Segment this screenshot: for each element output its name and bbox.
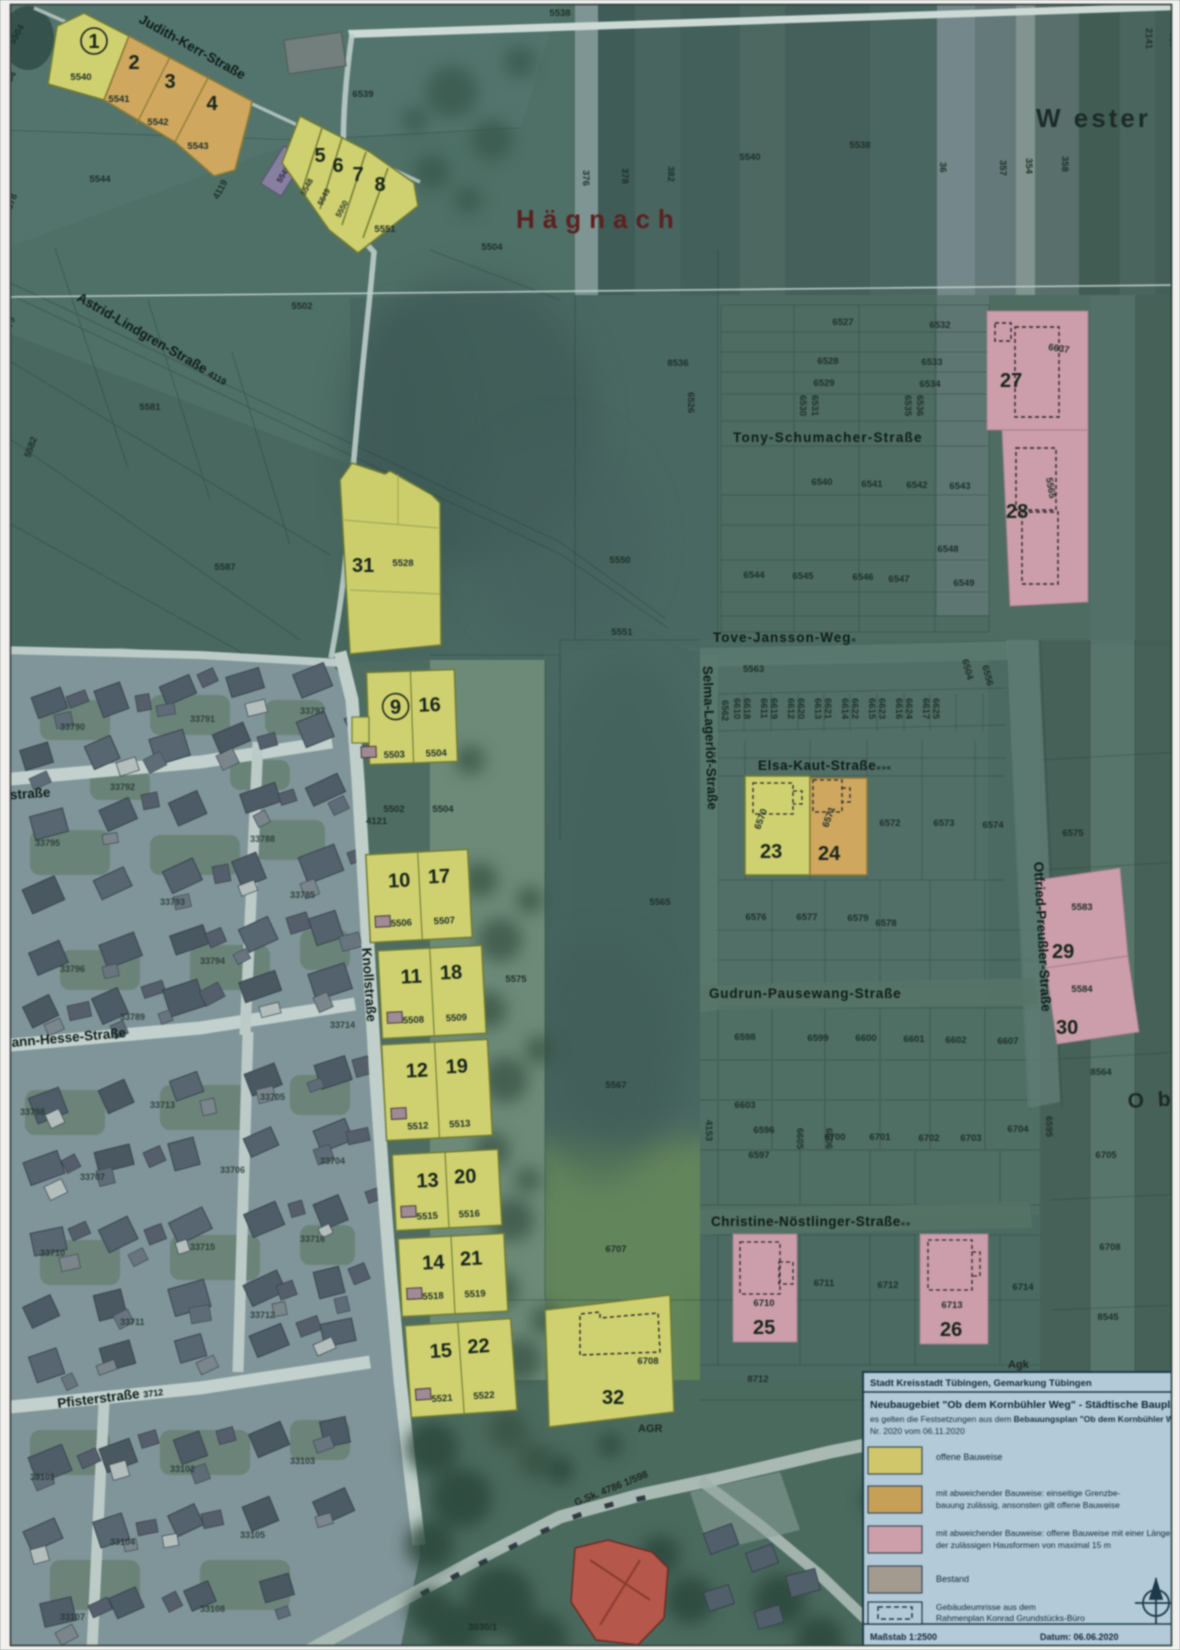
svg-text:6545: 6545 [792, 571, 814, 582]
svg-text:Hägnach: Hägnach [516, 204, 682, 234]
svg-text:10: 10 [388, 869, 411, 892]
svg-text:Christine-Nöstlinger-Straße«»: Christine-Nöstlinger-Straße«» [711, 1214, 911, 1229]
svg-text:3: 3 [164, 71, 175, 93]
svg-text:5543: 5543 [187, 141, 208, 152]
svg-text:25: 25 [753, 1317, 775, 1339]
svg-text:Gebäudeumrisse aus dem: Gebäudeumrisse aus dem [936, 1602, 1036, 1612]
svg-text:5538: 5538 [549, 8, 570, 19]
svg-text:5581: 5581 [139, 402, 161, 413]
svg-text:33790: 33790 [60, 722, 85, 732]
svg-text:6708: 6708 [637, 1356, 658, 1367]
svg-text:5502: 5502 [291, 301, 312, 312]
svg-text:5521: 5521 [431, 1393, 454, 1405]
svg-text:4121: 4121 [366, 816, 388, 827]
svg-text:6544: 6544 [743, 570, 765, 581]
svg-text:4: 4 [206, 93, 218, 115]
svg-text:AGR: AGR [638, 1423, 663, 1435]
svg-text:Bestand: Bestand [936, 1574, 969, 1584]
svg-text:33714: 33714 [330, 1020, 355, 1030]
svg-text:6: 6 [332, 155, 343, 177]
svg-text:der zulässigen Hausformen von: der zulässigen Hausformen von maximal 15… [936, 1540, 1111, 1550]
svg-text:6711: 6711 [814, 1278, 835, 1289]
svg-text:8564: 8564 [1090, 1067, 1112, 1078]
svg-text:5544: 5544 [89, 174, 111, 185]
svg-text:6579: 6579 [847, 913, 868, 924]
svg-text:6530: 6530 [797, 395, 808, 416]
svg-text:378: 378 [619, 168, 630, 184]
svg-text:33104: 33104 [110, 1537, 135, 1547]
svg-text:5522: 5522 [473, 1390, 495, 1402]
svg-text:27: 27 [1000, 370, 1022, 392]
svg-text:6606: 6606 [823, 1128, 834, 1149]
svg-text:6622: 6622 [849, 698, 860, 719]
svg-text:22: 22 [467, 1335, 491, 1358]
svg-text:6615: 6615 [866, 698, 877, 720]
svg-text:6578: 6578 [875, 918, 896, 929]
svg-text:6576: 6576 [745, 912, 766, 923]
svg-text:32: 32 [602, 1387, 624, 1409]
svg-text:17: 17 [427, 865, 450, 888]
svg-text:6539: 6539 [352, 89, 373, 100]
svg-text:6621: 6621 [822, 698, 833, 720]
svg-text:18: 18 [439, 961, 462, 984]
svg-text:6618: 6618 [741, 698, 752, 719]
svg-text:W ester: W ester [1036, 103, 1151, 133]
svg-text:8712: 8712 [747, 1374, 768, 1385]
svg-text:33793: 33793 [160, 897, 185, 907]
svg-text:Datum: 06.06.2020: Datum: 06.06.2020 [1040, 1632, 1119, 1642]
svg-text:5587: 5587 [214, 562, 235, 573]
svg-text:33792: 33792 [110, 782, 135, 792]
svg-text:5506: 5506 [391, 917, 413, 929]
svg-text:6541: 6541 [861, 479, 883, 490]
svg-text:6620: 6620 [795, 698, 806, 719]
svg-text:6574: 6574 [982, 820, 1004, 831]
svg-text:5502: 5502 [383, 804, 404, 815]
svg-text:5503: 5503 [384, 749, 406, 761]
svg-text:33710: 33710 [40, 1248, 65, 1258]
svg-text:5515: 5515 [417, 1210, 439, 1222]
svg-text:1: 1 [88, 31, 99, 53]
svg-text:33706: 33706 [220, 1165, 245, 1175]
svg-text:5516: 5516 [458, 1208, 480, 1220]
svg-text:20: 20 [454, 1165, 477, 1188]
svg-text:33788: 33788 [250, 834, 275, 844]
svg-text:mit abweichender Bauweise: off: mit abweichender Bauweise: offene Bauwei… [936, 1528, 1170, 1538]
svg-text:Rahmenplan Konrad Grundstücks-: Rahmenplan Konrad Grundstücks-Büro [936, 1613, 1085, 1623]
svg-text:6597: 6597 [748, 1150, 769, 1161]
svg-text:6546: 6546 [852, 572, 873, 583]
svg-text:6714: 6714 [1012, 1282, 1034, 1293]
svg-text:5518: 5518 [422, 1291, 444, 1303]
svg-text:33101: 33101 [30, 1472, 55, 1482]
svg-text:28: 28 [1006, 501, 1028, 523]
svg-text:33107: 33107 [60, 1612, 85, 1622]
svg-text:33798: 33798 [20, 1107, 45, 1117]
svg-text:mit abweichender Bauweise: ein: mit abweichender Bauweise: einseitige Gr… [936, 1488, 1120, 1498]
svg-text:6613: 6613 [812, 698, 823, 719]
svg-text:33102: 33102 [170, 1464, 195, 1474]
svg-text:9: 9 [390, 696, 402, 718]
svg-text:6619: 6619 [768, 698, 779, 719]
svg-text:6702: 6702 [918, 1133, 939, 1144]
svg-text:33797: 33797 [300, 706, 325, 716]
svg-text:33712: 33712 [250, 1310, 275, 1320]
svg-text:6595: 6595 [1043, 1116, 1054, 1138]
svg-text:6528: 6528 [817, 356, 838, 367]
svg-text:2141: 2141 [1143, 28, 1154, 50]
svg-text:6526: 6526 [685, 392, 696, 413]
svg-text:4153: 4153 [703, 1120, 714, 1141]
svg-text:offene Bauweise: offene Bauweise [936, 1452, 1002, 1462]
svg-text:31: 31 [352, 555, 374, 577]
svg-text:33785: 33785 [290, 890, 315, 900]
svg-text:Tony-Schumacher-Straße: Tony-Schumacher-Straße [733, 430, 923, 445]
svg-text:3030/1: 3030/1 [468, 1622, 498, 1633]
svg-text:6710: 6710 [753, 1298, 774, 1309]
svg-text:5508: 5508 [403, 1014, 425, 1026]
svg-text:382: 382 [665, 166, 676, 182]
svg-text:24: 24 [818, 843, 841, 865]
svg-text:33715: 33715 [190, 1242, 215, 1252]
svg-text:33705: 33705 [260, 1092, 285, 1102]
svg-text:7: 7 [352, 164, 363, 186]
svg-text:33789: 33789 [120, 1012, 145, 1022]
svg-text:6701: 6701 [869, 1132, 891, 1143]
svg-text:6611: 6611 [758, 698, 769, 719]
svg-text:Agk: Agk [1008, 1359, 1030, 1371]
svg-text:6549: 6549 [953, 578, 974, 589]
svg-text:33794: 33794 [200, 956, 225, 966]
svg-text:6573: 6573 [933, 818, 954, 829]
svg-text:354: 354 [1023, 158, 1034, 175]
svg-text:12: 12 [405, 1059, 428, 1082]
svg-text:6703: 6703 [960, 1133, 981, 1144]
svg-text:6607: 6607 [997, 1036, 1018, 1047]
svg-text:Tove-Jansson-Weg«: Tove-Jansson-Weg« [713, 630, 857, 645]
svg-text:Elsa-Kaut-Straße«»«: Elsa-Kaut-Straße«»« [758, 758, 892, 773]
svg-text:5584: 5584 [1071, 984, 1093, 995]
svg-text:6531: 6531 [809, 395, 820, 417]
svg-text:357: 357 [997, 160, 1008, 176]
svg-text:5551: 5551 [374, 224, 396, 235]
svg-text:6610: 6610 [731, 698, 742, 719]
svg-text:19: 19 [445, 1055, 468, 1078]
svg-text:6612: 6612 [785, 698, 796, 719]
svg-text:376: 376 [580, 170, 591, 186]
svg-text:bauung zulässig, ansonsten gil: bauung zulässig, ansonsten gilt offene B… [936, 1500, 1120, 1510]
svg-text:5504: 5504 [426, 748, 448, 760]
svg-text:6713: 6713 [941, 1300, 962, 1311]
svg-text:6536: 6536 [914, 395, 925, 416]
svg-text:5551: 5551 [611, 627, 633, 638]
svg-text:6602: 6602 [945, 1035, 966, 1046]
svg-text:33711: 33711 [120, 1317, 145, 1327]
svg-text:6712: 6712 [877, 1280, 898, 1291]
svg-text:6548: 6548 [937, 544, 958, 555]
svg-text:es gelten die Festsetzungen au: es gelten die Festsetzungen aus dem Beba… [870, 1414, 1180, 1424]
svg-text:5550: 5550 [609, 555, 630, 566]
svg-text:6562: 6562 [719, 700, 730, 721]
svg-text:6601: 6601 [903, 1034, 925, 1045]
svg-text:5504: 5504 [481, 242, 503, 253]
svg-text:6605: 6605 [794, 1128, 805, 1150]
svg-text:6572: 6572 [879, 818, 900, 829]
svg-text:15: 15 [429, 1340, 453, 1363]
svg-text:33795: 33795 [35, 838, 60, 848]
svg-text:5565: 5565 [649, 897, 671, 908]
svg-text:358: 358 [1059, 156, 1070, 172]
svg-text:6707: 6707 [605, 1244, 626, 1255]
svg-text:5563: 5563 [743, 664, 764, 675]
svg-text:5542: 5542 [147, 117, 168, 128]
svg-text:Gudrun-Pausewang-Straße: Gudrun-Pausewang-Straße [709, 986, 901, 1001]
svg-text:5541: 5541 [108, 94, 130, 105]
svg-text:6598: 6598 [734, 1032, 755, 1043]
svg-text:6704: 6704 [1007, 1124, 1029, 1135]
svg-text:6543: 6543 [949, 481, 970, 492]
svg-text:Neubaugebiet "Ob dem Kornbühle: Neubaugebiet "Ob dem Kornbühler Weg" - S… [870, 1399, 1180, 1411]
svg-text:33108: 33108 [200, 1604, 225, 1614]
svg-text:6535: 6535 [902, 395, 913, 417]
svg-text:2: 2 [128, 52, 139, 74]
svg-text:6534: 6534 [919, 379, 941, 390]
svg-text:6603: 6603 [734, 1100, 755, 1111]
svg-text:26: 26 [940, 1319, 962, 1341]
svg-text:6600: 6600 [855, 1033, 876, 1044]
svg-text:6529: 6529 [813, 378, 834, 389]
svg-text:5575: 5575 [505, 974, 527, 985]
svg-text:33707: 33707 [80, 1172, 105, 1182]
svg-text:Nr. 2020 vom 06.11.2020: Nr. 2020 vom 06.11.2020 [870, 1426, 965, 1436]
svg-text:6624: 6624 [903, 698, 914, 720]
svg-text:Maßstab 1:2500: Maßstab 1:2500 [870, 1632, 937, 1642]
svg-text:5512: 5512 [407, 1121, 429, 1133]
svg-text:6533: 6533 [921, 357, 942, 368]
svg-text:29: 29 [1052, 941, 1074, 963]
svg-text:13: 13 [416, 1169, 439, 1192]
svg-text:5513: 5513 [449, 1118, 471, 1130]
svg-text:21: 21 [460, 1247, 483, 1270]
svg-text:30: 30 [1056, 1017, 1078, 1039]
svg-text:36: 36 [937, 162, 948, 173]
svg-text:5504: 5504 [432, 804, 454, 815]
svg-text:14: 14 [422, 1251, 446, 1274]
svg-text:5540: 5540 [70, 72, 91, 83]
svg-text:11: 11 [400, 966, 422, 989]
svg-text:8: 8 [374, 174, 385, 196]
svg-text:33716: 33716 [300, 1234, 325, 1244]
svg-text:6705: 6705 [1095, 1150, 1117, 1161]
svg-text:6527: 6527 [832, 317, 853, 328]
svg-text:5509: 5509 [446, 1012, 468, 1024]
svg-text:33704: 33704 [320, 1156, 345, 1166]
svg-text:6540: 6540 [811, 477, 832, 488]
svg-text:6614: 6614 [839, 698, 850, 720]
svg-text:5583: 5583 [1071, 902, 1092, 913]
svg-text:5540: 5540 [739, 152, 760, 163]
svg-text:5567: 5567 [605, 1080, 626, 1091]
svg-text:6575: 6575 [1062, 828, 1084, 839]
svg-text:6617: 6617 [920, 698, 931, 719]
svg-text:6623: 6623 [876, 698, 887, 719]
svg-text:33105: 33105 [240, 1530, 265, 1540]
svg-text:6532: 6532 [929, 320, 950, 331]
svg-text:5519: 5519 [464, 1288, 486, 1300]
svg-text:6625: 6625 [930, 698, 941, 720]
svg-text:8545: 8545 [1097, 1312, 1119, 1323]
svg-text:6542: 6542 [906, 480, 927, 491]
svg-text:6616: 6616 [893, 698, 904, 719]
svg-text:5528: 5528 [392, 558, 413, 569]
svg-text:33791: 33791 [190, 714, 215, 724]
svg-text:6708: 6708 [1099, 1242, 1120, 1253]
svg-text:Stadt Kreisstadt Tübingen, Gem: Stadt Kreisstadt Tübingen, Gemarkung Tüb… [870, 1378, 1092, 1389]
svg-text:5538: 5538 [849, 140, 870, 151]
svg-text:6547: 6547 [888, 574, 909, 585]
svg-text:33103: 33103 [290, 1456, 315, 1466]
svg-text:23: 23 [760, 841, 782, 863]
svg-text:6577: 6577 [796, 912, 817, 923]
svg-text:33713: 33713 [150, 1100, 175, 1110]
svg-text:6599: 6599 [807, 1033, 828, 1044]
svg-text:16: 16 [418, 694, 441, 717]
svg-text:33796: 33796 [60, 964, 85, 974]
svg-text:5507: 5507 [434, 915, 456, 927]
svg-text:O b: O b [1127, 1088, 1175, 1113]
svg-text:6596: 6596 [753, 1125, 774, 1136]
svg-text:8536: 8536 [667, 358, 688, 369]
svg-text:5: 5 [314, 145, 325, 167]
